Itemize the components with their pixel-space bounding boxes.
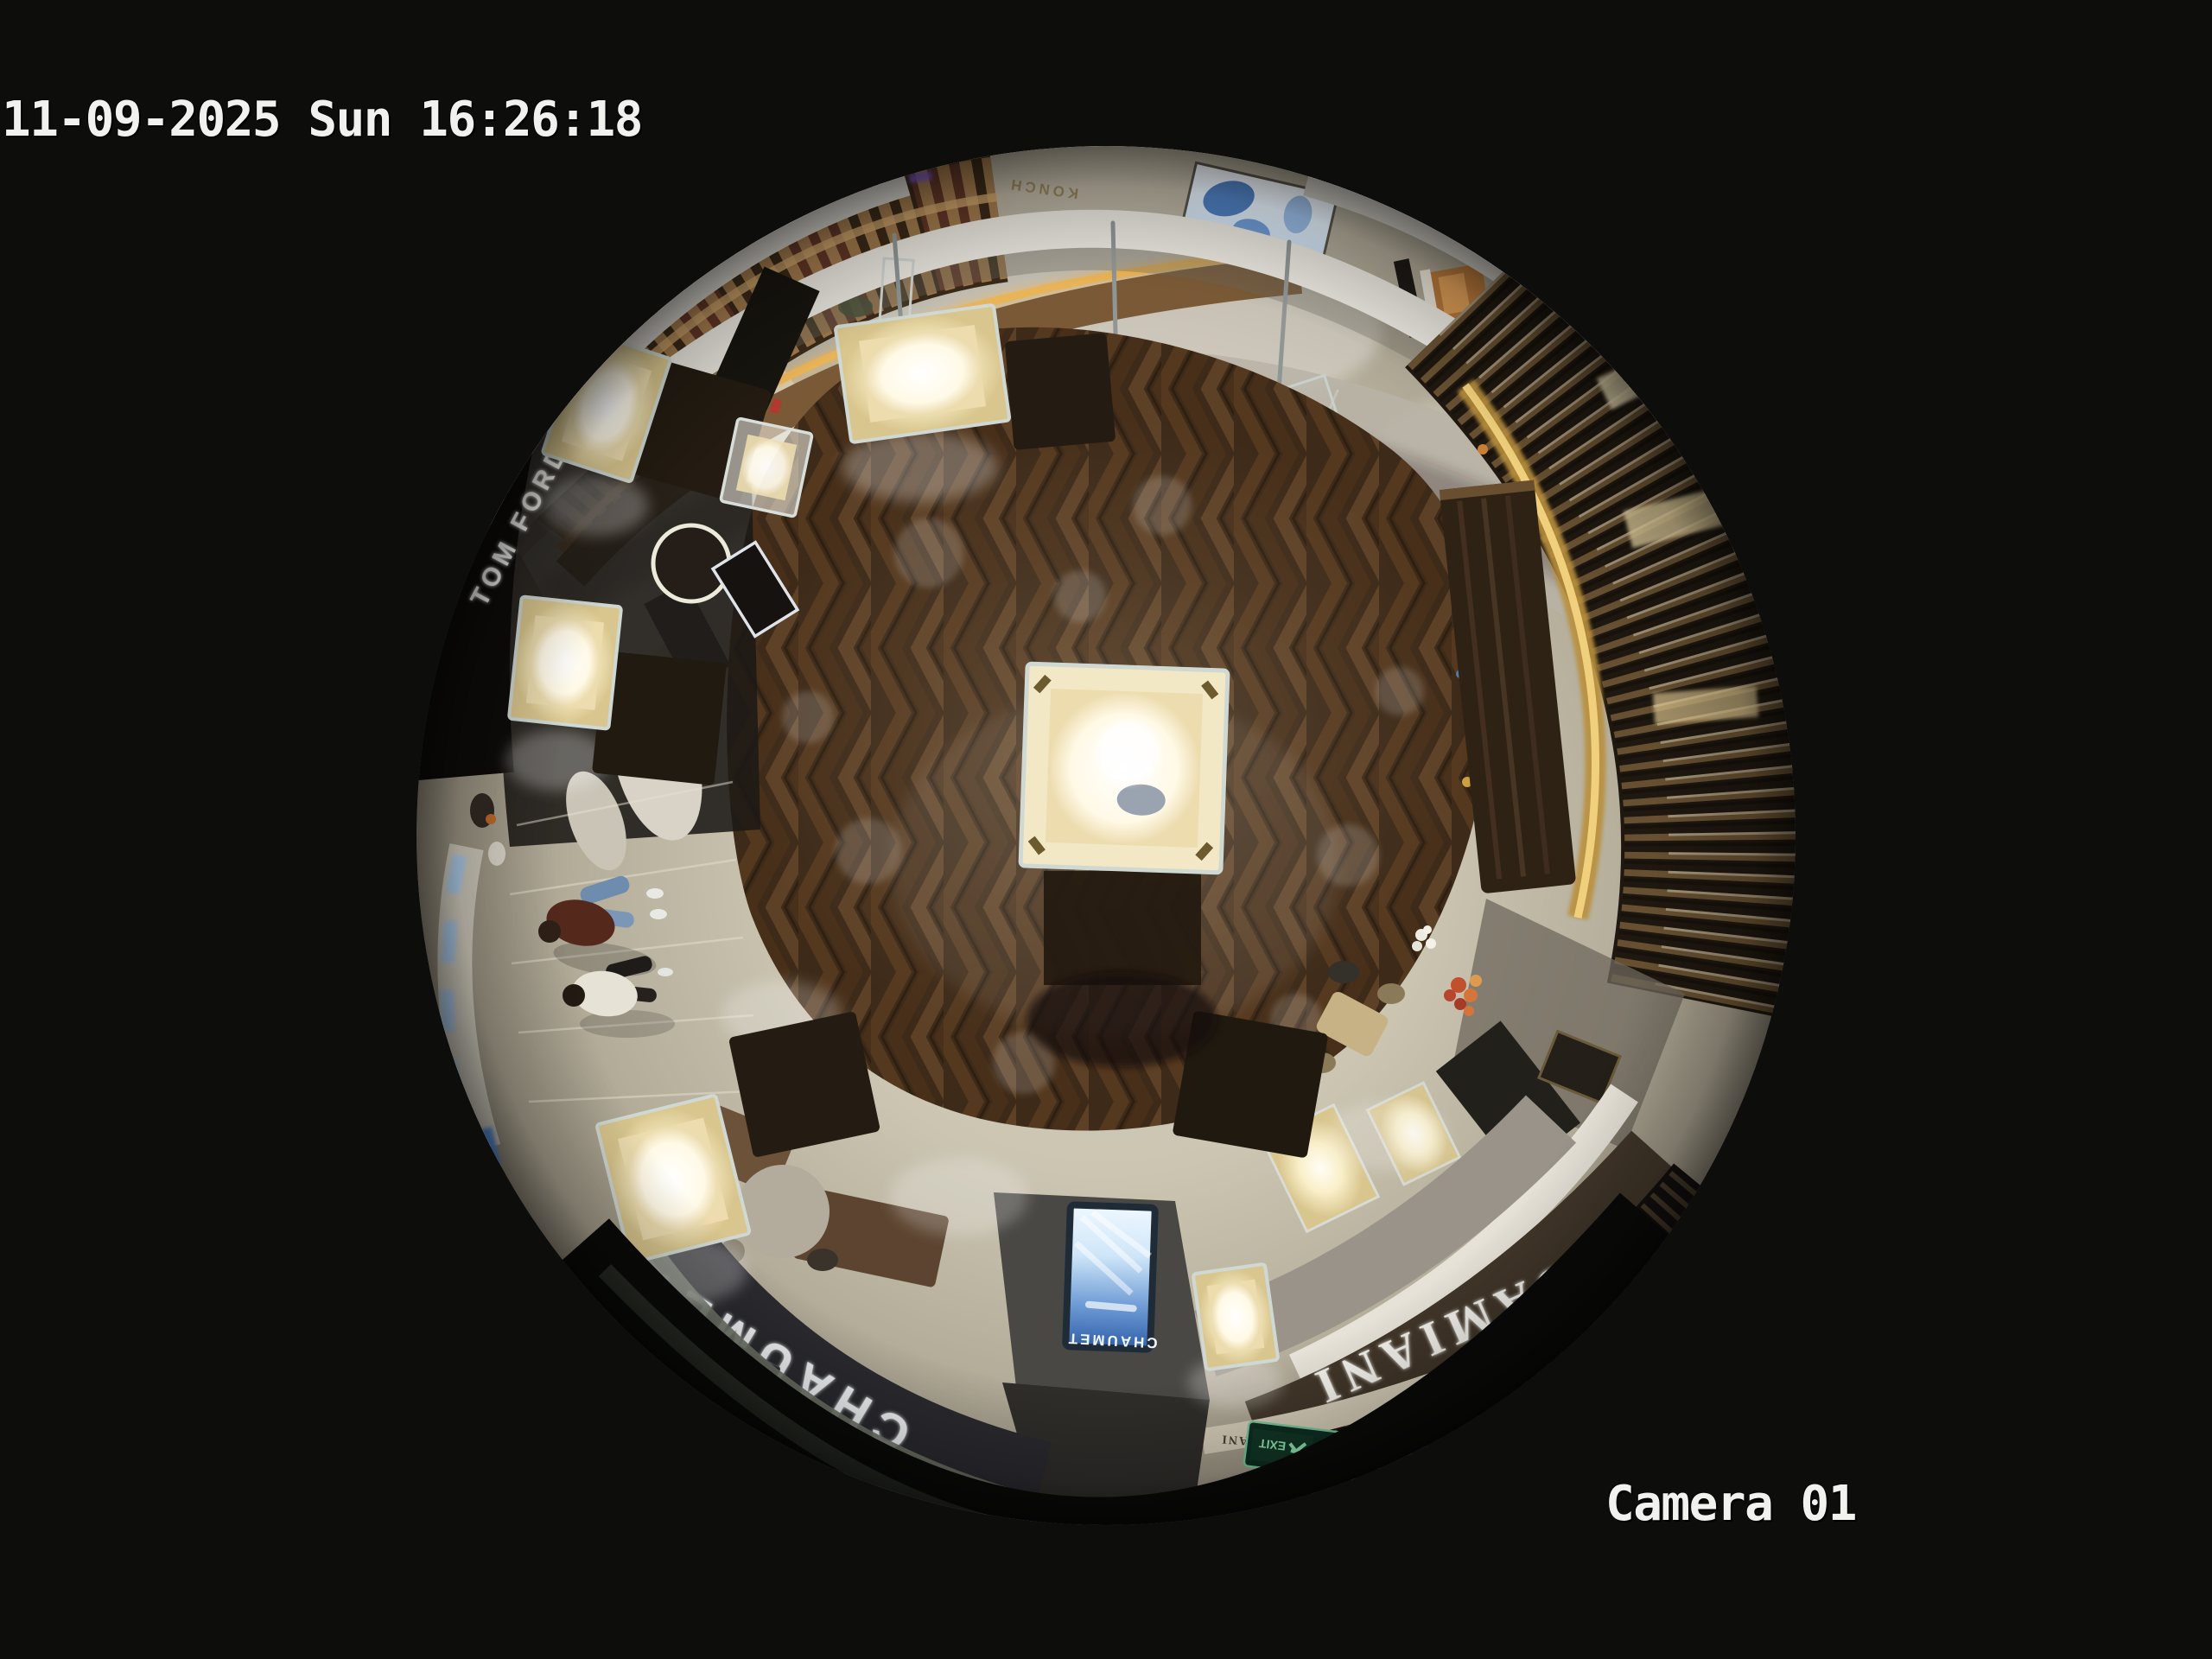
osd-camera-label: Camera 01: [1605, 1476, 1856, 1532]
osd-timestamp: 11-09-2025 Sun 16:26:18: [2, 92, 642, 148]
surveillance-frame: 11-09-2025 Sun 16:26:18 Camera 01: [0, 0, 2212, 1659]
fisheye-view: KONCH: [0, 0, 2212, 1659]
lens-vignette: [416, 146, 1796, 1525]
